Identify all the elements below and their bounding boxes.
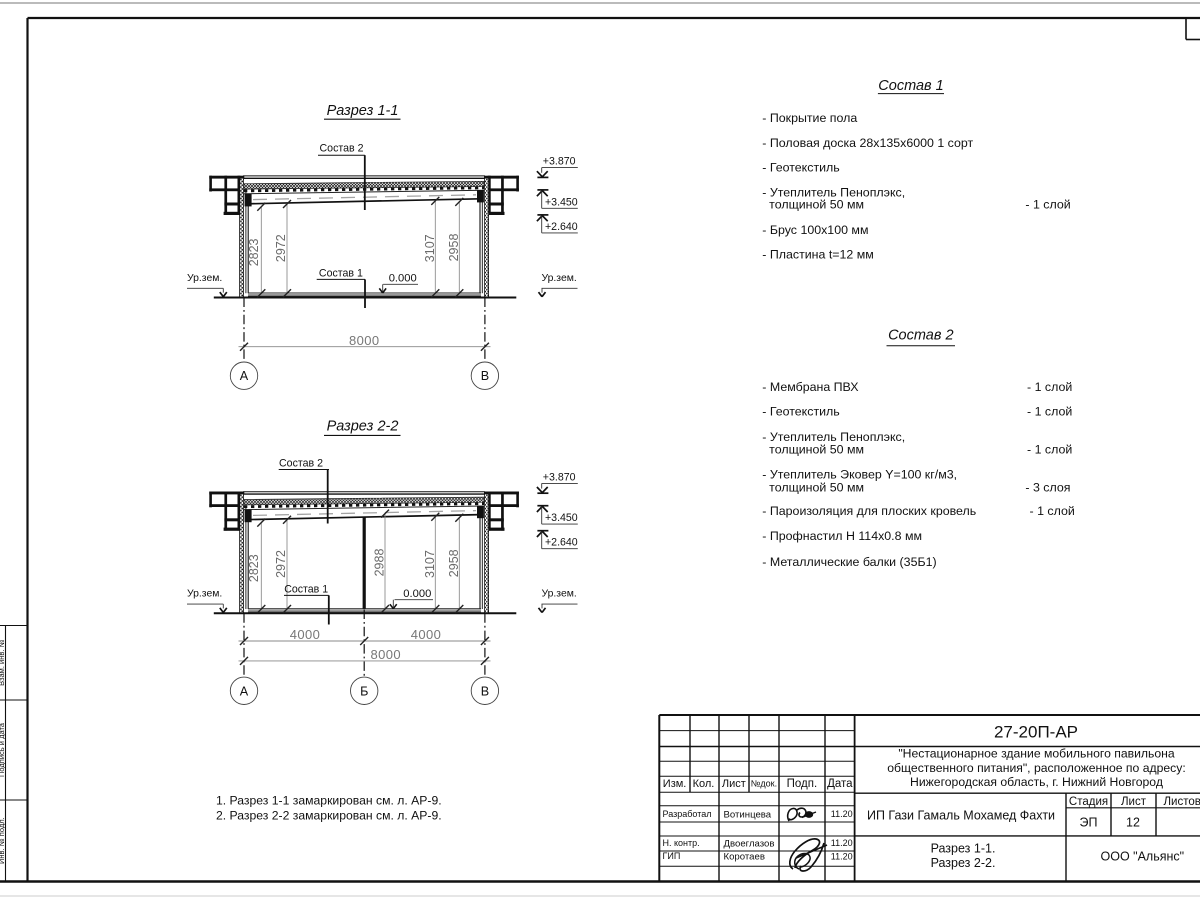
svg-text:0.000: 0.000 (403, 588, 431, 600)
svg-text:1. Разрез 1-1 замаркирован см.: 1. Разрез 1-1 замаркирован см. л. АР-9. (216, 794, 442, 808)
svg-text:+3.870: +3.870 (543, 156, 576, 168)
svg-text:- 1 слой: - 1 слой (1030, 504, 1075, 518)
svg-text:Подпись и дата: Подпись и дата (0, 722, 6, 777)
svg-text:- 1 слой: - 1 слой (1027, 443, 1072, 457)
svg-text:Разрез 2-2: Разрез 2-2 (327, 419, 399, 435)
svg-text:Состав 1: Состав 1 (284, 584, 328, 596)
svg-text:11.20: 11.20 (831, 851, 853, 861)
svg-text:2. Разрез 2-2 замаркирован см.: 2. Разрез 2-2 замаркирован см. л. АР-9. (216, 808, 442, 822)
svg-text:Разрез 1-1.: Разрез 1-1. (931, 842, 996, 856)
svg-text:- Профнастил Н 114х0.8 мм: - Профнастил Н 114х0.8 мм (762, 529, 922, 543)
svg-text:- Мембрана ПВХ: - Мембрана ПВХ (762, 380, 858, 394)
svg-text:Изм.: Изм. (663, 778, 687, 790)
svg-text:Состав 1: Состав 1 (878, 78, 943, 94)
svg-text:8000: 8000 (349, 333, 380, 348)
svg-text:12: 12 (1126, 815, 1140, 829)
svg-text:4000: 4000 (290, 627, 321, 642)
svg-text:+3.450: +3.450 (545, 196, 578, 208)
svg-text:Стадия: Стадия (1069, 796, 1108, 808)
svg-text:Лист: Лист (722, 778, 746, 790)
svg-text:ИП Гази Гамаль Мохамед Фахти: ИП Гази Гамаль Мохамед Фахти (867, 809, 1055, 823)
svg-text:ООО "Альянс": ООО "Альянс" (1101, 850, 1185, 864)
svg-text:В: В (481, 684, 489, 698)
svg-text:- 1 слой: - 1 слой (1027, 405, 1072, 419)
svg-text:Инв. № подл.: Инв. № подл. (0, 817, 6, 864)
svg-text:Разрез 1-1: Разрез 1-1 (327, 103, 399, 119)
svg-text:- 1 слой: - 1 слой (1025, 198, 1070, 212)
svg-text:Состав 2: Состав 2 (279, 457, 323, 469)
svg-text:4000: 4000 (411, 627, 442, 642)
svg-text:- Металлические балки (35Б1): - Металлические балки (35Б1) (762, 555, 936, 569)
svg-text:Взам. инв. №: Взам. инв. № (0, 639, 6, 685)
svg-text:- Геотекстиль: - Геотекстиль (762, 161, 839, 175)
svg-text:Разрез 2-2.: Разрез 2-2. (931, 856, 996, 870)
svg-text:"Нестационарное здание мобильн: "Нестационарное здание мобильного павиль… (898, 747, 1175, 761)
svg-text:+2.640: +2.640 (545, 221, 578, 233)
svg-text:Лист: Лист (1121, 796, 1147, 808)
svg-text:2988: 2988 (372, 549, 386, 577)
svg-text:- Половая доска 28х135х6000 1: - Половая доска 28х135х6000 1 сорт (762, 136, 973, 150)
svg-text:№док.: №док. (751, 779, 777, 789)
svg-text:Подп.: Подп. (787, 778, 818, 790)
svg-text:толщиной 50 мм: толщиной 50 мм (762, 481, 864, 495)
svg-text:- Покрытие пола: - Покрытие пола (762, 111, 857, 125)
svg-text:ГИП: ГИП (663, 851, 681, 861)
svg-text:- Брус 100х100 мм: - Брус 100х100 мм (762, 223, 868, 237)
svg-text:2823: 2823 (247, 238, 261, 266)
svg-text:8000: 8000 (371, 647, 402, 662)
svg-text:- Пластина t=12 мм: - Пластина t=12 мм (762, 248, 874, 262)
svg-text:- 3 слоя: - 3 слоя (1025, 481, 1070, 495)
svg-text:Ур.зем.: Ур.зем. (542, 273, 577, 284)
svg-text:2958: 2958 (447, 234, 461, 262)
svg-text:27-20П-АР: 27-20П-АР (994, 722, 1078, 741)
svg-text:Двоеглазов: Двоеглазов (724, 838, 775, 849)
svg-text:- Геотекстиль: - Геотекстиль (762, 405, 839, 419)
svg-text:Состав 2: Состав 2 (320, 143, 364, 155)
svg-text:Состав 1: Состав 1 (319, 267, 363, 279)
svg-text:А: А (240, 369, 249, 383)
svg-text:- 1 слой: - 1 слой (1027, 380, 1072, 394)
svg-text:0.000: 0.000 (389, 272, 417, 284)
svg-text:Кол.: Кол. (693, 778, 715, 790)
svg-text:3107: 3107 (423, 234, 437, 262)
svg-text:Разработал: Разработал (663, 809, 712, 819)
svg-text:толщиной 50 мм: толщиной 50 мм (762, 443, 864, 457)
svg-text:Состав 2: Состав 2 (888, 327, 953, 343)
svg-text:В: В (481, 369, 489, 383)
svg-text:2972: 2972 (274, 234, 288, 262)
svg-text:общественного питания", распол: общественного питания", расположенное по… (887, 761, 1185, 775)
svg-text:Б: Б (360, 684, 368, 698)
svg-text:11.20: 11.20 (831, 809, 853, 819)
svg-text:Нижегородская область, г. Нижн: Нижегородская область, г. Нижний Новгоро… (910, 775, 1163, 789)
svg-text:- Утеплитель Эковер Y=100 кг/м: - Утеплитель Эковер Y=100 кг/м3, (762, 468, 957, 482)
svg-text:- Пароизоляция для плоских кро: - Пароизоляция для плоских кровель (762, 504, 976, 518)
svg-text:11.20: 11.20 (831, 838, 853, 848)
svg-text:толщиной 50 мм: толщиной 50 мм (762, 198, 864, 212)
svg-text:Н. контр.: Н. контр. (663, 838, 700, 848)
svg-text:Дата: Дата (827, 778, 853, 790)
svg-text:А: А (240, 684, 249, 698)
svg-text:Коротаев: Коротаев (724, 851, 765, 862)
svg-text:ЭП: ЭП (1080, 815, 1098, 829)
svg-text:Листов: Листов (1164, 796, 1200, 808)
svg-text:Вотинцева: Вотинцева (724, 810, 772, 821)
svg-text:Ур.зем.: Ур.зем. (187, 273, 222, 284)
